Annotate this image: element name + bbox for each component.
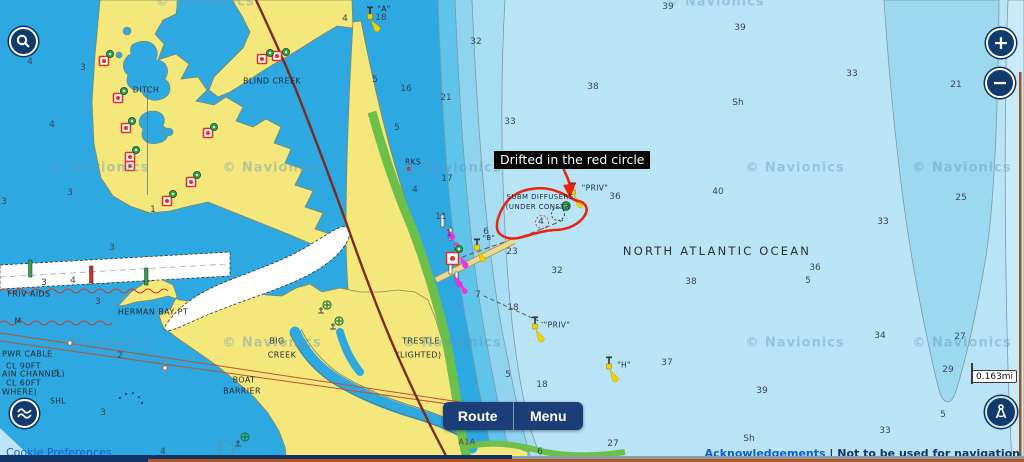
- minus-icon: −: [992, 74, 1008, 93]
- measure-distance-button[interactable]: [985, 396, 1017, 428]
- menu-button[interactable]: Menu: [513, 402, 584, 430]
- road-right-edge: [1019, 72, 1022, 462]
- annotation-label: Drifted in the red circle: [494, 151, 650, 169]
- scale-indicator: 0.163 mi: [972, 370, 1017, 383]
- search-button[interactable]: [9, 27, 38, 56]
- scale-unit: mi: [1002, 372, 1013, 382]
- divider-compass-icon: [992, 403, 1010, 421]
- search-icon: [16, 34, 31, 49]
- wave-logo-icon: [16, 405, 33, 422]
- route-menu-bar: Route Menu: [443, 402, 583, 430]
- navionics-chart-app: 43433133432534418393251621383933Sh213351…: [0, 0, 1024, 462]
- navionics-logo[interactable]: [10, 399, 39, 428]
- plus-icon: +: [993, 34, 1009, 53]
- zoom-out-button[interactable]: −: [985, 68, 1015, 98]
- scale-value: 0.163: [976, 372, 1002, 382]
- zoom-in-button[interactable]: +: [986, 28, 1016, 58]
- rks-hazard-dot: [407, 167, 411, 171]
- route-button[interactable]: Route: [443, 402, 513, 430]
- chart-canvas[interactable]: [0, 0, 1024, 462]
